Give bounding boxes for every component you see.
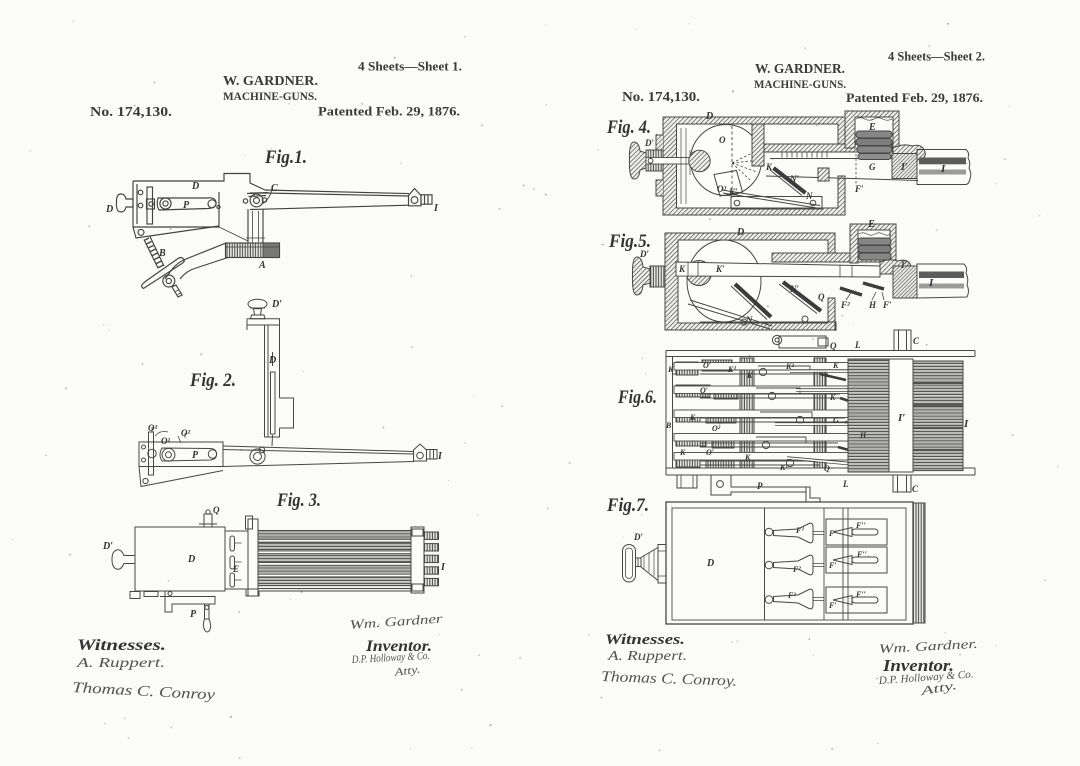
svg-text:K²: K² (785, 362, 794, 371)
svg-text:No. 174,130.: No. 174,130. (622, 90, 700, 105)
svg-text:A. Ruppert.: A. Ruppert. (607, 649, 687, 664)
svg-text:W. GARDNER.: W. GARDNER. (223, 73, 318, 88)
svg-text:D′: D′ (633, 532, 643, 542)
svg-text:D: D (105, 204, 113, 215)
svg-text:Q: Q (213, 505, 220, 515)
svg-text:4 Sheets—Sheet 1.: 4 Sheets—Sheet 1. (358, 60, 462, 74)
svg-text:D′: D′ (644, 138, 654, 148)
svg-text:F′: F′ (828, 529, 837, 538)
svg-text:N′: N′ (789, 284, 799, 294)
svg-text:O′: O′ (706, 448, 714, 457)
svg-text:F′: F′ (882, 300, 892, 310)
svg-text:K: K (678, 264, 686, 274)
svg-text:D′: D′ (271, 299, 282, 310)
svg-text:K: K (744, 453, 751, 462)
svg-text:N: N (745, 315, 753, 325)
svg-text:I′: I′ (897, 412, 905, 424)
svg-text:K: K (765, 162, 773, 172)
svg-text:G: G (869, 162, 876, 172)
svg-text:P: P (192, 450, 199, 461)
svg-text:N′: N′ (789, 174, 799, 184)
svg-text:O²: O² (181, 428, 190, 438)
svg-text:G: G (833, 416, 839, 425)
svg-text:Witnesses.: Witnesses. (77, 637, 166, 654)
svg-text:D′: D′ (639, 249, 649, 259)
svg-text:F³: F³ (787, 591, 796, 600)
svg-text:I′: I′ (900, 162, 908, 173)
svg-text:MACHINE-GUNS.: MACHINE-GUNS. (754, 77, 846, 91)
svg-text:No. 174,130.: No. 174,130. (90, 105, 172, 120)
svg-text:E: E (868, 122, 876, 133)
svg-text:O²: O² (712, 424, 721, 433)
svg-text:D: D (705, 111, 713, 122)
svg-text:L: L (842, 479, 849, 489)
svg-text:A: A (258, 260, 266, 271)
svg-text:Patented Feb. 29, 1876.: Patented Feb. 29, 1876. (846, 91, 983, 105)
svg-text:O²: O² (148, 423, 157, 433)
svg-text:C: C (913, 336, 920, 346)
svg-text:O: O (719, 135, 726, 145)
svg-text:B: B (665, 421, 672, 430)
svg-text:MACHINE-GUNS.: MACHINE-GUNS. (223, 89, 317, 103)
svg-text:P: P (183, 200, 190, 211)
svg-text:Fig.7.: Fig.7. (606, 495, 649, 516)
svg-text:K: K (832, 361, 839, 370)
svg-text:Patented Feb. 29, 1876.: Patented Feb. 29, 1876. (318, 105, 460, 119)
svg-text:E: E (867, 219, 875, 230)
svg-text:K: K (679, 448, 686, 457)
svg-text:F′: F′ (854, 184, 864, 194)
svg-text:O³: O³ (717, 184, 726, 194)
svg-text:H: H (859, 431, 867, 440)
svg-text:O′: O′ (703, 361, 711, 370)
svg-text:K: K (746, 371, 753, 380)
svg-text:Fig.6.: Fig.6. (617, 387, 657, 408)
svg-text:F′′: F′′ (855, 521, 866, 530)
svg-text:A. Ruppert.: A. Ruppert. (76, 656, 165, 671)
svg-text:D: D (268, 355, 276, 366)
svg-text:D: D (736, 227, 744, 238)
svg-text:D′: D′ (102, 541, 113, 552)
svg-text:K: K (667, 365, 674, 374)
svg-text:P: P (190, 609, 197, 620)
svg-text:I: I (928, 277, 934, 289)
svg-text:D: D (706, 558, 714, 569)
svg-text:Fig. 2.: Fig. 2. (189, 370, 236, 391)
svg-text:E: E (232, 564, 239, 574)
svg-text:K′: K′ (715, 264, 725, 274)
svg-text:W. GARDNER.: W. GARDNER. (755, 61, 845, 76)
svg-text:O′: O′ (700, 386, 708, 395)
svg-text:K: K (829, 393, 836, 402)
svg-text:I: I (963, 418, 969, 430)
svg-text:Fig. 4.: Fig. 4. (606, 117, 651, 138)
svg-text:D: D (187, 554, 195, 565)
svg-text:C: C (912, 484, 919, 494)
svg-text:F′′: F′′ (856, 550, 867, 559)
svg-text:N: N (805, 191, 813, 201)
svg-text:H: H (868, 300, 877, 310)
svg-text:K: K (689, 413, 696, 422)
svg-text:4 Sheets—Sheet 2.: 4 Sheets—Sheet 2. (888, 50, 985, 64)
svg-text:C: C (271, 183, 278, 194)
svg-text:I′: I′ (900, 260, 908, 270)
svg-text:D: D (191, 181, 199, 192)
svg-text:O¹: O¹ (161, 436, 170, 446)
svg-text:I: I (940, 163, 946, 175)
svg-text:F²: F² (840, 300, 850, 310)
svg-text:K′: K′ (728, 187, 738, 197)
svg-text:F′: F′ (828, 561, 837, 570)
svg-text:Fig. 3.: Fig. 3. (276, 490, 321, 511)
svg-text:Q: Q (818, 292, 825, 302)
svg-text:B: B (158, 248, 166, 259)
svg-text:Witnesses.: Witnesses. (605, 632, 685, 648)
svg-text:Q: Q (830, 341, 837, 351)
svg-text:K¹: K¹ (779, 463, 788, 472)
svg-text:Fig.1.: Fig.1. (264, 147, 307, 168)
svg-text:F′′: F′′ (855, 590, 866, 599)
svg-text:P: P (757, 481, 763, 491)
svg-text:F′: F′ (828, 601, 837, 610)
svg-text:L: L (854, 340, 861, 350)
svg-text:Q: Q (824, 464, 830, 473)
svg-text:F²: F² (792, 565, 801, 574)
